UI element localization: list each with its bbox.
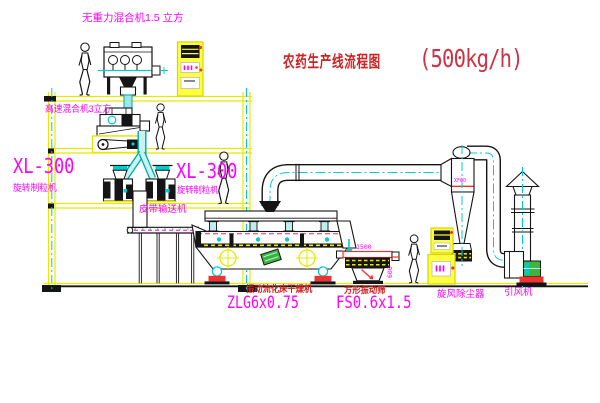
duct-funnel <box>259 201 281 212</box>
fan-label: 引风机 <box>504 288 533 298</box>
control-cabinet-right <box>428 228 455 284</box>
cyclone-cone <box>452 192 475 244</box>
title-text: 农药生产线流程图 <box>283 55 381 71</box>
high-speed-mixer-label: 高速混合机3立方 <box>45 105 111 115</box>
person-figure <box>155 104 165 149</box>
screen-deck-frame <box>343 252 392 258</box>
person-figure <box>79 43 91 95</box>
screen-deck <box>345 258 390 269</box>
exhaust-duct <box>259 164 445 212</box>
screen-outlet <box>392 252 399 261</box>
fan-inlet-box <box>505 252 524 279</box>
process-flow-diagram: 无重力混合机1.5 立方 农药生产线流程图(500kg/h) 高速混合机3立方 … <box>0 0 600 403</box>
screen-width-dimension: 600 <box>387 266 394 278</box>
dryer-model-label: ZLG6x0.75 <box>227 295 299 312</box>
cyclone-label: 旋风除尘器 <box>437 290 485 300</box>
granulator-left-name-label: 旋转制粒机 <box>13 184 57 194</box>
granulator-mid-model-label: XL-300 <box>176 161 237 181</box>
person-figure <box>409 235 420 283</box>
gravity-mixer-machine <box>98 43 168 113</box>
title-capacity: (500kg/h) <box>419 46 523 71</box>
control-cabinet-top <box>178 42 204 96</box>
cyclone-model-label: XF00 <box>454 179 466 185</box>
gravity-mixer-label: 无重力混合机1.5 立方 <box>82 13 184 24</box>
granulator-mid-name-label: 旋转制粒机 <box>177 186 218 195</box>
cyclone-body <box>452 159 475 193</box>
screen-model-label: FS0.6x1.5 <box>336 295 412 312</box>
dryer-hood <box>205 211 337 221</box>
belt-conveyor-label: 皮带输送机 <box>139 205 187 215</box>
granulator-left-model-label: XL-300 <box>13 156 74 176</box>
screen-length-dimension: 1500 <box>356 244 372 251</box>
fan-base <box>520 277 544 283</box>
cyclone-inlet-cone <box>441 159 452 187</box>
dryer-hood-posts <box>208 221 331 232</box>
diagram-title: 农药生产线流程图(500kg/h) <box>283 46 545 71</box>
fluid-bed-dryer <box>192 211 356 284</box>
